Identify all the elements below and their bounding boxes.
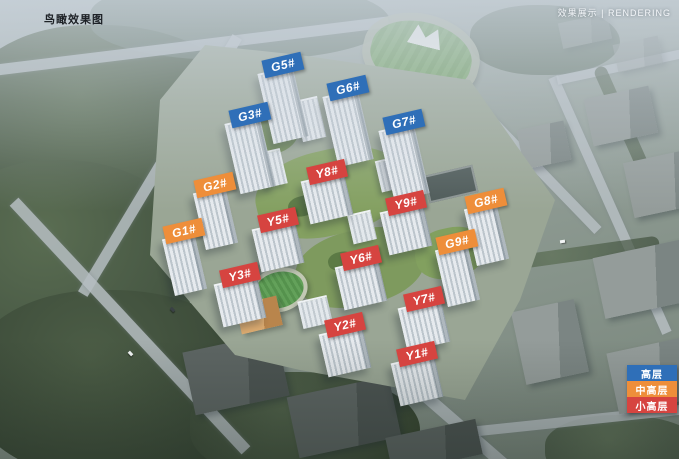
rendering-caption: 效果展示 | RENDERING [558, 6, 671, 19]
city-block [511, 299, 589, 385]
legend-item-high-rise: 高层 [627, 365, 677, 381]
car [560, 240, 565, 244]
city-block [613, 36, 664, 73]
aerial-rendering: G5#G6#G3#G7#G2#G1#G8#G9#Y8#Y9#Y5#Y6#Y3#Y… [0, 0, 679, 459]
legend-item-mid-high-rise: 中高层 [627, 381, 677, 397]
legend: 高层 中高层 小高层 [627, 365, 677, 413]
city-block [584, 86, 659, 147]
page-title: 鸟瞰效果图 [44, 11, 104, 27]
legend-item-small-high-rise: 小高层 [627, 397, 677, 413]
